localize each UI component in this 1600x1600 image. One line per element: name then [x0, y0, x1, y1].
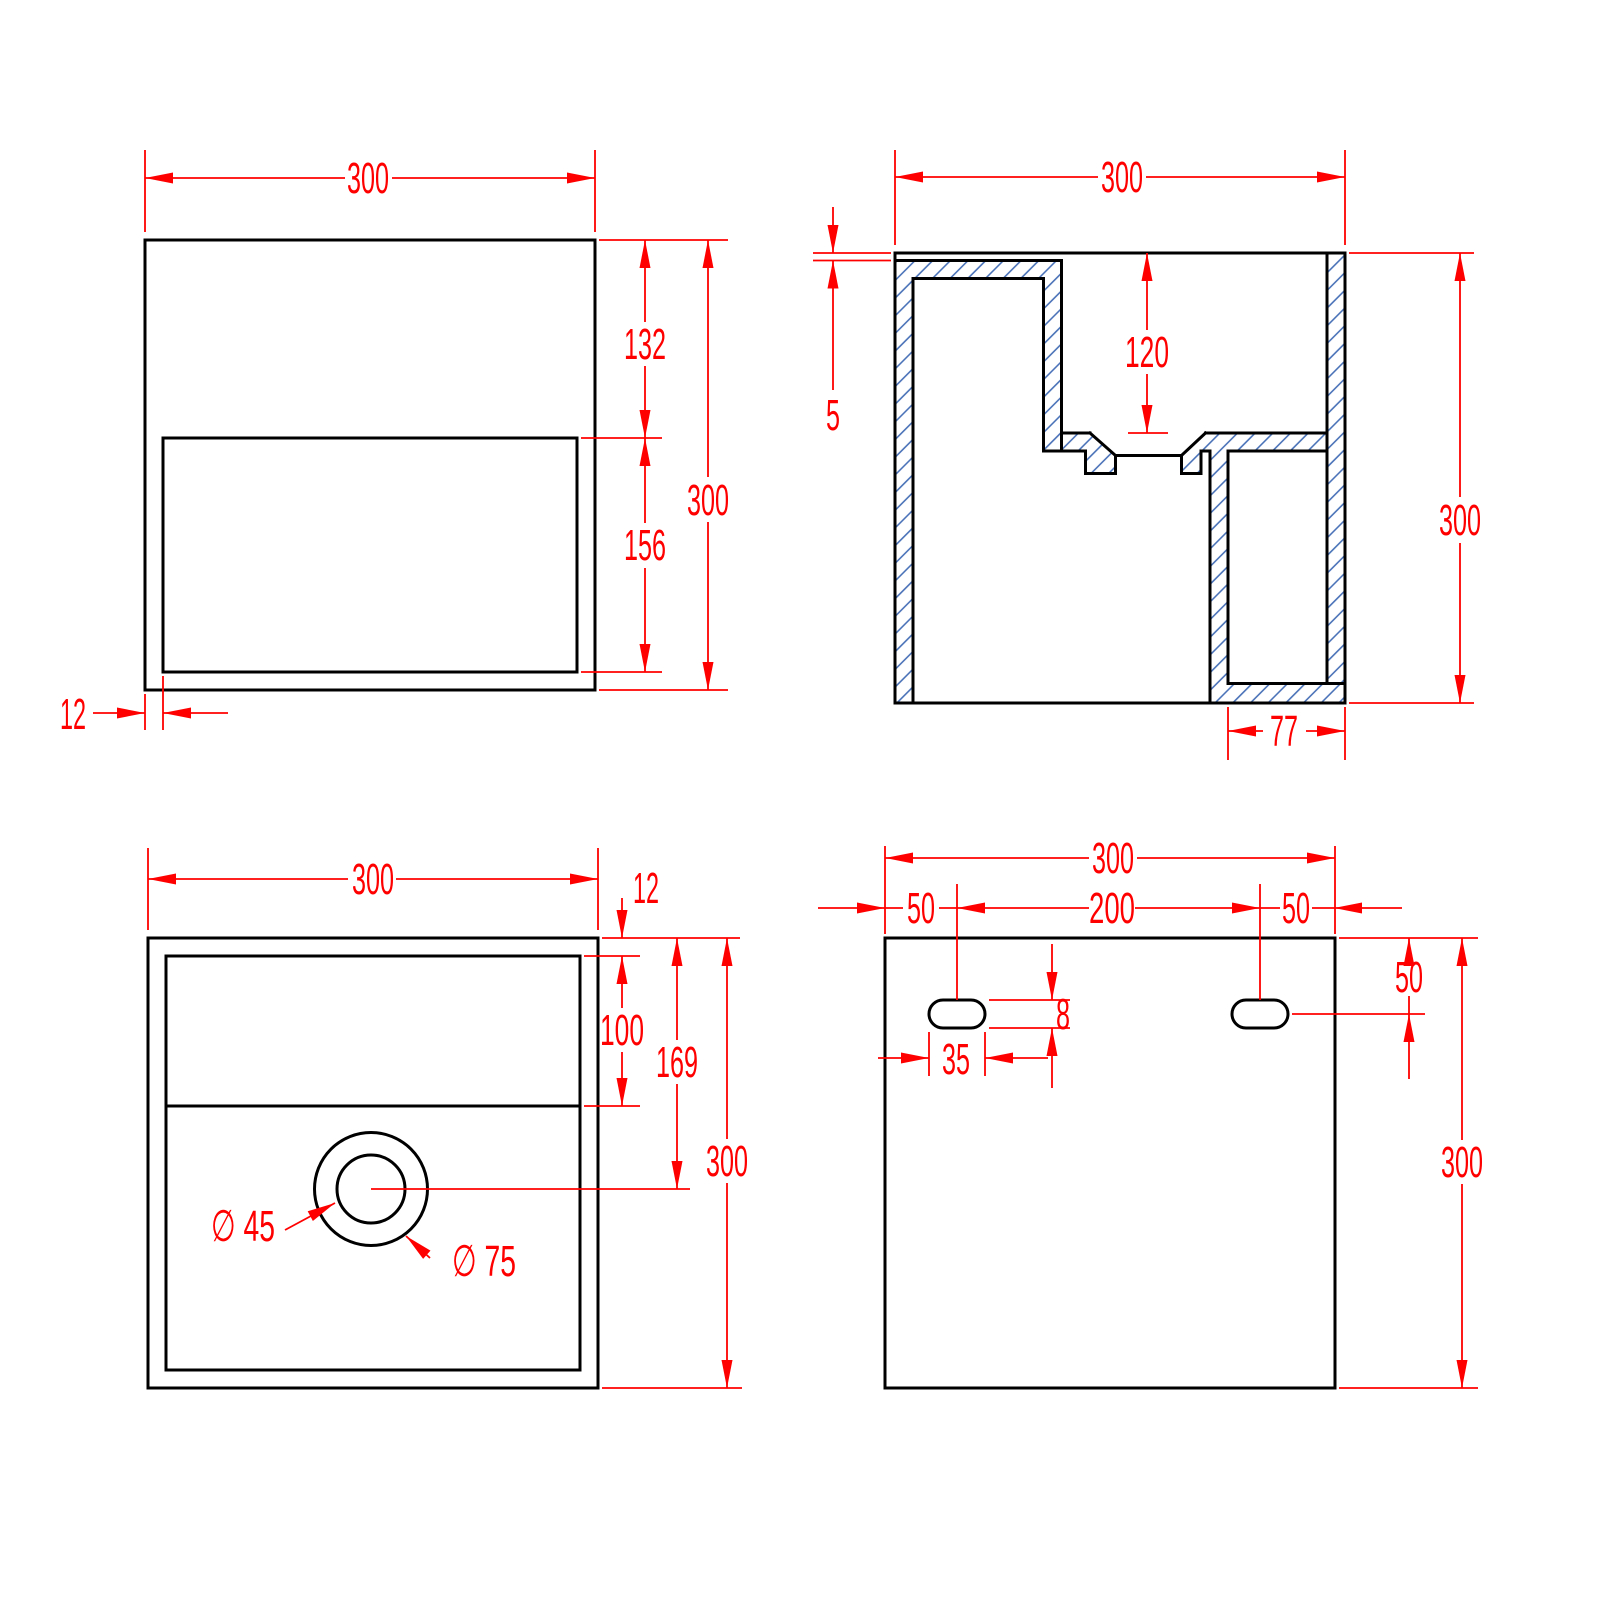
dim-hole-edge-left-50: 50	[907, 884, 935, 933]
dim-bowl-depth-120: 120	[1125, 328, 1169, 377]
dim-ledge-100: 100	[600, 1006, 644, 1055]
dim-slot-length-35: 35	[942, 1035, 970, 1084]
hatch-region	[1044, 279, 1062, 452]
dim-drain-outer-diameter-75: ∅ 75	[452, 1237, 516, 1286]
dim-height-300: 300	[1441, 1138, 1483, 1187]
hatch-region	[895, 261, 913, 704]
dim-drain-diameter-45: ∅ 45	[211, 1202, 275, 1251]
dim-recess-height-156: 156	[624, 521, 666, 570]
dim-hole-edge-right-50: 50	[1282, 884, 1310, 933]
dim-top-to-recess-132: 132	[624, 320, 666, 369]
dim-rim-12: 12	[633, 864, 659, 913]
hatch-region	[1327, 253, 1345, 684]
dim-hole-spacing-200: 200	[1089, 884, 1135, 933]
dim-rim-lip-5: 5	[826, 391, 840, 440]
hatch-region	[913, 261, 1062, 279]
dim-hole-top-50: 50	[1395, 953, 1423, 1002]
technical-drawing-canvas: 3001321563001230051203007730012100169300…	[0, 0, 1600, 1600]
dim-height-300: 300	[687, 476, 729, 525]
dim-depth-300: 300	[706, 1137, 748, 1186]
drawing-page: 3001321563001230051203007730012100169300…	[0, 0, 1600, 1600]
dim-channel-77: 77	[1270, 707, 1298, 756]
dim-drain-center-169: 169	[656, 1038, 698, 1087]
dim-slot-height-8: 8	[1056, 990, 1070, 1039]
dim-width-300: 300	[352, 855, 394, 904]
dim-width-300: 300	[1101, 153, 1143, 202]
dim-width-300: 300	[347, 154, 389, 203]
dim-wall-thickness-12: 12	[60, 690, 86, 739]
dim-width-300: 300	[1092, 834, 1134, 883]
dim-height-300: 300	[1439, 496, 1481, 545]
